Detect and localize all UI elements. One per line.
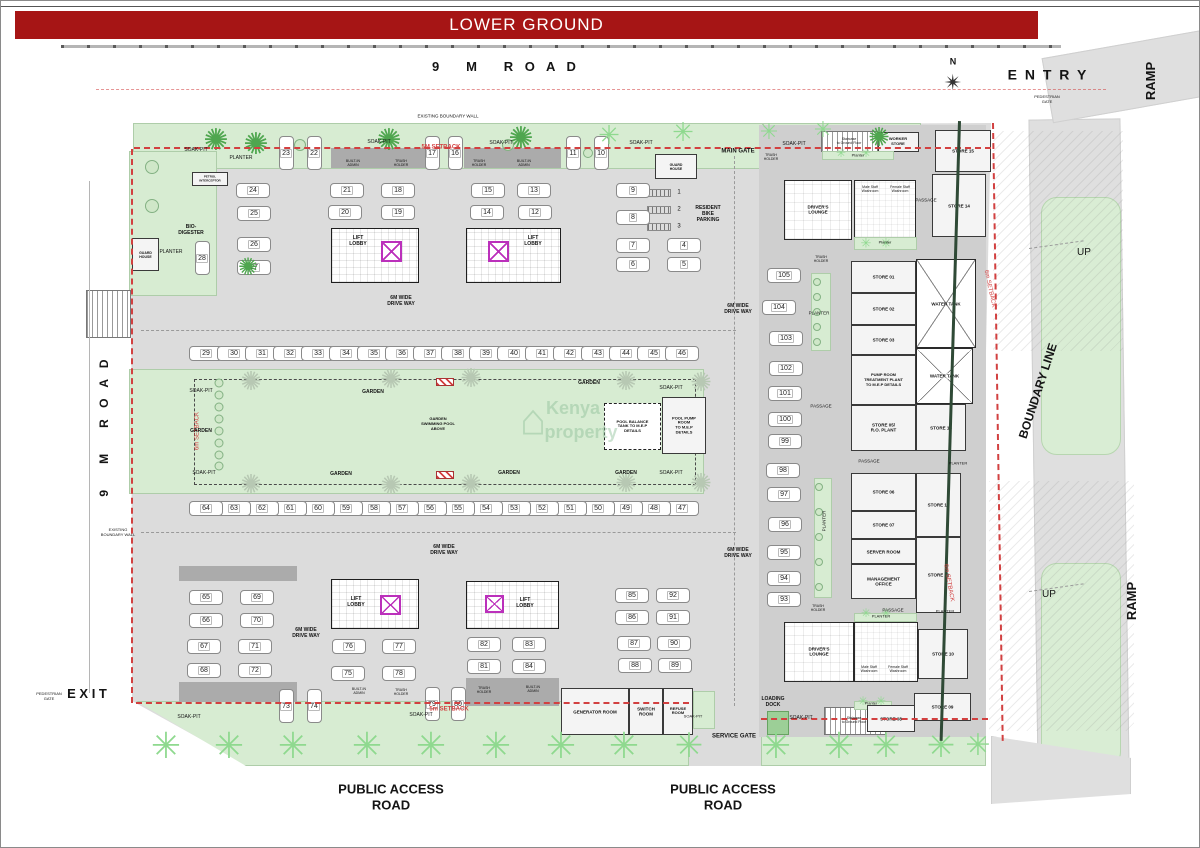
- label-9-m-r-o-a-d: 9 M R O A D: [97, 355, 111, 496]
- parking-number-46: 46: [676, 349, 688, 358]
- parking-stall-13: 13: [517, 183, 551, 198]
- room-label-guard-house-west: GUARD HOUSE: [139, 250, 152, 258]
- parking-number-63: 63: [228, 504, 240, 513]
- parking-stall-8: 8: [616, 210, 650, 225]
- label-planter: Planter: [865, 702, 878, 707]
- label-passage: PASSAGE: [858, 458, 879, 463]
- parking-stall-100: 100: [768, 412, 802, 427]
- parking-number-15: 15: [482, 186, 494, 195]
- parking-stall-11: 11: [566, 136, 581, 170]
- parking-number-7: 7: [629, 241, 637, 250]
- parking-stall-84: 84: [512, 659, 546, 674]
- room-lift-lobby-2: [466, 228, 561, 283]
- parking-stall-74: 74: [307, 689, 322, 723]
- label-trash-holder: TRASH HOLDER: [477, 686, 492, 694]
- label-loading-dock: LOADING DOCK: [761, 696, 784, 708]
- parking-number-38: 38: [452, 349, 464, 358]
- parking-number-29: 29: [200, 349, 212, 358]
- label-garden: GARDEN: [330, 471, 352, 477]
- label-ramp: RAMP: [1143, 62, 1159, 100]
- label-resident-bike-parking: RESIDENT BIKE PARKING: [695, 205, 720, 223]
- parking-number-11: 11: [567, 149, 578, 158]
- parking-number-12: 12: [529, 208, 541, 217]
- parking-number-105: 105: [776, 271, 792, 280]
- label-worker-store: WORKER STORE: [889, 137, 907, 147]
- label-main-gate: MAIN GATE: [721, 148, 754, 155]
- room-label-lift-lobby-3: LIFT LOBBY: [347, 596, 365, 608]
- room-lift-lobby-3: [331, 579, 419, 629]
- room-label-water-tank-2: WATER TANK: [930, 373, 959, 378]
- label-garden: GARDEN: [362, 389, 384, 395]
- parking-number-81: 81: [478, 662, 490, 671]
- label-planter: Planter: [852, 154, 865, 159]
- parking-number-47: 47: [676, 504, 688, 513]
- label-planter: PLANTER: [936, 610, 954, 615]
- parking-number-64: 64: [200, 504, 212, 513]
- parking-number-42: 42: [564, 349, 576, 358]
- parking-stall-83: 83: [512, 637, 546, 652]
- parking-stall-26: 26: [237, 237, 271, 252]
- line-lane-9: [141, 532, 736, 533]
- parking-stall-28: 28: [195, 241, 210, 275]
- line-wall-0: [61, 45, 1061, 48]
- parking-number-102: 102: [778, 364, 794, 373]
- label-built-in-admin: BUILT-IN ADMIN: [526, 685, 540, 693]
- parking-number-77: 77: [393, 642, 405, 651]
- label-bio-digester: BIO- DIGESTER: [178, 224, 204, 236]
- room-bike-rack-1: [647, 189, 671, 197]
- parking-number-48: 48: [648, 504, 660, 513]
- label-9-m-r-o-a-d: 9 M R O A D: [432, 59, 580, 75]
- parking-number-93: 93: [778, 595, 790, 604]
- line-redh-2: [134, 147, 991, 149]
- label-public-access-road: PUBLIC ACCESS ROAD: [338, 781, 444, 812]
- parking-number-43: 43: [592, 349, 604, 358]
- parking-number-58: 58: [368, 504, 380, 513]
- parking-number-14: 14: [481, 208, 493, 217]
- parking-stall-105: 105: [767, 268, 801, 283]
- label-pedestrian-gate: PEDESTRIAN GATE: [1034, 95, 1060, 105]
- parking-stall-80: 80: [451, 687, 466, 721]
- parking-stall-20: 20: [328, 205, 362, 220]
- parking-stall-82: 82: [467, 637, 501, 652]
- parking-number-65: 65: [200, 593, 212, 602]
- parking-stall-77: 77: [382, 639, 416, 654]
- room-lift-lobby-1: [331, 228, 419, 283]
- label-built-in-admin: BUILT-IN ADMIN: [352, 687, 366, 695]
- parking-number-90: 90: [668, 639, 680, 648]
- parking-number-92: 92: [667, 591, 679, 600]
- parking-stall-71: 71: [238, 639, 272, 654]
- label-soak-pit: SOAK-PIT: [782, 141, 805, 147]
- parking-number-78: 78: [393, 669, 405, 678]
- label-n: N: [950, 57, 957, 68]
- parking-number-33: 33: [312, 349, 324, 358]
- label-existing-boundary-wall: EXISTING BOUNDARY WALL: [101, 528, 135, 538]
- parking-number-91: 91: [667, 613, 679, 622]
- parking-number-86: 86: [626, 613, 638, 622]
- parking-stall-92: 92: [656, 588, 690, 603]
- room-bike-rack-2: [647, 206, 671, 214]
- label-female-staff-washroom: Female Staff Washroom: [888, 665, 908, 673]
- label-planter: PLANTER: [229, 155, 252, 161]
- parking-stall-96: 96: [768, 517, 802, 532]
- label-trash-holder: TRASH HOLDER: [811, 604, 826, 612]
- zone-hatch-bottom-right: [989, 481, 1134, 731]
- parking-stall-6: 6: [616, 257, 650, 272]
- parking-number-36: 36: [396, 349, 408, 358]
- label-soak-pit: SOAK-PIT: [184, 147, 207, 153]
- parking-stall-76: 76: [332, 639, 366, 654]
- room-label-store-03: STORE 03: [873, 337, 895, 342]
- parking-number-75: 75: [342, 669, 354, 678]
- room-label-water-tank-1: WATER TANK: [931, 301, 960, 306]
- parking-stall-17: 17: [425, 136, 440, 170]
- label-soak-pit: SOAK-PIT: [177, 714, 200, 720]
- parking-stall-67: 67: [187, 639, 221, 654]
- bike-number-1: 1: [677, 189, 680, 196]
- label-6m-wide-drive-way: 6M WIDE DRIVE WAY: [724, 303, 752, 315]
- room-label-drivers-lounge-north: DRIVER'S LOUNGE: [807, 205, 828, 216]
- parking-number-83: 83: [523, 640, 535, 649]
- parking-number-98: 98: [777, 466, 789, 475]
- parking-stall-99: 99: [768, 434, 802, 449]
- parking-number-84: 84: [523, 662, 535, 671]
- parking-stall-72: 72: [238, 663, 272, 678]
- label-6m-wide-drive-way: 6M WIDE DRIVE WAY: [387, 295, 415, 307]
- page-top-rule: [1, 6, 1199, 7]
- label-trash-holder: TRASH HOLDER: [394, 688, 409, 696]
- parking-stall-89: 89: [658, 658, 692, 673]
- parking-stall-85: 85: [615, 588, 649, 603]
- parking-stall-90: 90: [657, 636, 691, 651]
- parking-stall-93: 93: [767, 592, 801, 607]
- line-lanev-10: [734, 156, 735, 706]
- label-female-staff-washroom: Female Staff Washroom: [890, 185, 910, 193]
- room-soak-pit-green: [693, 691, 715, 729]
- parking-number-20: 20: [339, 208, 351, 217]
- line-lane-8: [141, 330, 736, 331]
- parking-number-56: 56: [424, 504, 436, 513]
- parking-number-69: 69: [251, 593, 263, 602]
- parking-number-21: 21: [341, 186, 353, 195]
- parking-number-24: 24: [247, 186, 259, 195]
- parking-stall-9: 9: [616, 183, 650, 198]
- room-island-bottom-1: [179, 566, 297, 581]
- room-planter-col-2: [814, 478, 832, 598]
- parking-number-39: 39: [480, 349, 492, 358]
- label-up: UP: [1077, 247, 1091, 259]
- parking-number-40: 40: [508, 349, 520, 358]
- parking-number-34: 34: [340, 349, 352, 358]
- parking-number-104: 104: [771, 303, 787, 312]
- parking-stall-4: 4: [667, 238, 701, 253]
- room-label-store-14: STORE 14: [948, 203, 970, 208]
- parking-number-103: 103: [778, 334, 794, 343]
- room-label-management-office: MANAGEMENT OFFICE: [867, 576, 900, 587]
- label-trash-holder: TRASH HOLDER: [764, 153, 779, 161]
- label-passage: PASSAGE: [915, 197, 936, 202]
- parking-number-18: 18: [392, 186, 404, 195]
- parking-stall-25: 25: [237, 206, 271, 221]
- parking-number-62: 62: [256, 504, 268, 513]
- line-redv-3: [131, 149, 133, 703]
- parking-number-31: 31: [256, 349, 268, 358]
- room-label-store-15: STORE 15: [952, 148, 974, 153]
- label-label: ⌂: [520, 395, 547, 448]
- label-planter: PLANTER: [949, 462, 967, 467]
- compass-icon: ✴: [944, 72, 962, 94]
- parking-number-99: 99: [779, 437, 791, 446]
- bike-number-2: 2: [677, 206, 680, 213]
- parking-number-70: 70: [251, 616, 263, 625]
- label-property: property: [544, 422, 617, 444]
- parking-number-76: 76: [343, 642, 355, 651]
- parking-number-35: 35: [368, 349, 380, 358]
- label-5m-setback: 5M SETBACK: [421, 144, 460, 151]
- parking-number-8: 8: [629, 213, 637, 222]
- room-loading-dock-pad: [767, 711, 789, 735]
- parking-stall-46: 46: [665, 346, 699, 361]
- room-lift-car-1: [381, 241, 402, 262]
- parking-stall-101: 101: [768, 386, 802, 401]
- parking-stall-78: 78: [382, 666, 416, 681]
- room-label-petrol-interceptor: PETROL INTERCEPTOR: [199, 175, 220, 182]
- room-label-store-06: STORE 06: [873, 489, 895, 494]
- label-passage: PASSAGE: [882, 607, 903, 612]
- parking-number-87: 87: [628, 639, 640, 648]
- label-planter: PLANTER: [821, 511, 826, 532]
- parking-stall-75: 75: [331, 666, 365, 681]
- parking-number-82: 82: [478, 640, 490, 649]
- parking-number-89: 89: [669, 661, 681, 670]
- label-6m-wide-drive-way: 6M WIDE DRIVE WAY: [724, 547, 752, 559]
- label-garden: GARDEN: [615, 470, 637, 476]
- parking-number-13: 13: [528, 186, 540, 195]
- label-6m-wide-drive-way: 6M WIDE DRIVE WAY: [292, 627, 320, 639]
- room-label-store-01: STORE 01: [873, 274, 895, 279]
- room-label-guard-house-gate: GUARD HOUSE: [670, 162, 683, 170]
- plan-title-bar: LOWER GROUND: [15, 11, 1038, 39]
- label-staircase-to-ground-floor: Staircase to Ground Floor: [842, 716, 867, 724]
- parking-stall-86: 86: [615, 610, 649, 625]
- room-label-server-room: SERVER ROOM: [867, 549, 901, 554]
- parking-number-32: 32: [284, 349, 296, 358]
- parking-number-4: 4: [680, 241, 688, 250]
- parking-stall-19: 19: [381, 205, 415, 220]
- parking-stall-81: 81: [467, 659, 501, 674]
- parking-stall-73: 73: [279, 689, 294, 723]
- parking-stall-91: 91: [656, 610, 690, 625]
- room-label-store-02: STORE 02: [873, 306, 895, 311]
- parking-stall-22: 22: [307, 136, 322, 170]
- parking-stall-12: 12: [518, 205, 552, 220]
- parking-number-85: 85: [626, 591, 638, 600]
- tree-palm: ✳: [151, 728, 181, 764]
- parking-stall-7: 7: [616, 238, 650, 253]
- parking-number-49: 49: [620, 504, 632, 513]
- label-soak-pit: SOAK-PIT: [789, 715, 812, 721]
- label-garden: GARDEN: [190, 428, 212, 434]
- parking-number-27: 27: [248, 263, 260, 272]
- floor-plan: LOWER GROUND LIFT LOBBYLIFT LOBBYLIFT LO…: [0, 0, 1200, 848]
- label-soak-pit: SOAK-PIT: [659, 385, 682, 391]
- parking-number-53: 53: [508, 504, 520, 513]
- label-planter: Planter: [879, 241, 892, 246]
- label-soak-pit: SOAK-PIT: [189, 388, 212, 394]
- parking-stall-66: 66: [189, 613, 223, 628]
- parking-stall-65: 65: [189, 590, 223, 605]
- parking-number-71: 71: [249, 642, 261, 651]
- parking-number-10: 10: [595, 149, 607, 158]
- parking-stall-10: 10: [594, 136, 609, 170]
- parking-number-25: 25: [248, 209, 260, 218]
- label-pedestrian-gate: PEDESTRIAN GATE: [36, 692, 62, 702]
- parking-number-94: 94: [778, 574, 790, 583]
- parking-stall-103: 103: [769, 331, 803, 346]
- parking-stall-97: 97: [767, 487, 801, 502]
- line-redh-4: [136, 702, 689, 704]
- label-e-x-i-t: E X I T: [67, 686, 107, 702]
- label-staircase-to-ground-floor: Staircase to Ground Floor: [837, 137, 862, 145]
- parking-number-23: 23: [280, 149, 292, 158]
- room-lift-car-2: [488, 241, 509, 262]
- label-male-staff-washroom: Male Staff Washroom: [861, 665, 878, 673]
- room-section-marker-north: [436, 378, 454, 386]
- label-soak-pit: SOAK-PIT: [409, 712, 432, 718]
- room-lift-car-3: [380, 595, 401, 615]
- label-existing-boundary-wall: EXISTING BOUNDARY WALL: [418, 113, 479, 118]
- parking-number-55: 55: [452, 504, 464, 513]
- label-kenya: Kenya: [546, 398, 600, 420]
- parking-stall-64: 64: [189, 501, 223, 516]
- parking-stall-16: 16: [448, 136, 463, 170]
- parking-number-28: 28: [196, 254, 208, 263]
- label-public-access-road: PUBLIC ACCESS ROAD: [670, 781, 776, 812]
- room-label-store-05-ro-plant: STORE 05/ R.O. PLANT: [871, 423, 897, 434]
- bike-number-3: 3: [677, 223, 680, 230]
- parking-stall-23: 23: [279, 136, 294, 170]
- parking-number-9: 9: [629, 186, 637, 195]
- parking-number-97: 97: [778, 490, 790, 499]
- parking-stall-15: 15: [471, 183, 505, 198]
- parking-stall-94: 94: [767, 571, 801, 586]
- label-ramp: RAMP: [1124, 582, 1140, 620]
- parking-number-100: 100: [777, 415, 793, 424]
- parking-number-22: 22: [308, 149, 320, 158]
- label-passage: PASSAGE: [810, 403, 831, 408]
- parking-stall-88: 88: [618, 658, 652, 673]
- label-6m-wide-drive-way: 6M WIDE DRIVE WAY: [430, 544, 458, 556]
- parking-stall-95: 95: [767, 545, 801, 560]
- room-label-lift-lobby-4: LIFT LOBBY: [516, 597, 534, 609]
- parking-number-88: 88: [629, 661, 641, 670]
- room-label-lift-lobby-1: LIFT LOBBY: [349, 235, 367, 247]
- parking-number-66: 66: [200, 616, 212, 625]
- label-soak-pit: SOAK-PIT: [489, 140, 512, 146]
- label-garden: GARDEN: [498, 470, 520, 476]
- label-5m-setback: 5m SETBACK: [429, 706, 468, 713]
- room-label-switch-room: SWITCH ROOM: [637, 706, 655, 717]
- room-stair-exit-left: [86, 290, 131, 338]
- room-section-marker-south: [436, 471, 454, 479]
- parking-stall-27: 27: [237, 260, 271, 275]
- label-built-in-admin: BUILT-IN ADMIN: [517, 159, 531, 167]
- parking-number-60: 60: [312, 504, 324, 513]
- room-label-pool-balance-tank: POOL BALANCE TANK TO M.E.P DETAILS: [617, 419, 649, 433]
- parking-number-68: 68: [198, 666, 210, 675]
- room-label-pool-pump-room: POOL PUMP ROOM TO M.E.P DETAILS: [672, 416, 696, 435]
- label-male-staff-washroom: Male Staff Washroom: [862, 185, 879, 193]
- label-soak-pit: SOAK-PIT: [684, 715, 703, 720]
- parking-number-59: 59: [340, 504, 352, 513]
- room-label-generator-room: GENERATOR ROOM: [573, 709, 617, 714]
- parking-number-30: 30: [228, 349, 240, 358]
- parking-number-101: 101: [777, 389, 793, 398]
- room-label-store-07: STORE 07: [873, 522, 895, 527]
- label-garden-swimming-pool-above: GARDEN SWIMMING POOL ABOVE: [421, 417, 455, 431]
- parking-stall-18: 18: [381, 183, 415, 198]
- parking-stall-70: 70: [240, 613, 274, 628]
- parking-stall-102: 102: [769, 361, 803, 376]
- parking-stall-68: 68: [187, 663, 221, 678]
- label-up: UP: [1042, 589, 1056, 601]
- room-label-pump-room: PUMP ROOM TREATMENT PLANT TO M.E.P DETAI…: [864, 373, 903, 387]
- parking-number-52: 52: [536, 504, 548, 513]
- room-lift-car-4: [485, 595, 504, 613]
- parking-number-61: 61: [284, 504, 296, 513]
- parking-number-57: 57: [396, 504, 408, 513]
- parking-number-72: 72: [249, 666, 261, 675]
- parking-number-6: 6: [629, 260, 637, 269]
- parking-stall-21: 21: [330, 183, 364, 198]
- parking-number-41: 41: [536, 349, 548, 358]
- parking-stall-24: 24: [236, 183, 270, 198]
- parking-number-67: 67: [198, 642, 210, 651]
- parking-number-45: 45: [648, 349, 660, 358]
- parking-number-51: 51: [564, 504, 576, 513]
- parking-stall-104: 104: [762, 300, 796, 315]
- label-trash-holder: TRASH HOLDER: [814, 255, 829, 263]
- room-lift-lobby-4: [466, 581, 559, 629]
- room-label-lift-lobby-2: LIFT LOBBY: [524, 235, 542, 247]
- parking-number-50: 50: [592, 504, 604, 513]
- label-built-in-admin: BUILT-IN ADMIN: [346, 159, 360, 167]
- label-soak-pit: SOAK-PIT: [192, 470, 215, 476]
- room-bike-rack-3: [647, 223, 671, 231]
- label-soak-pit: SOAK-PIT: [629, 140, 652, 146]
- label-planter: PLANTER: [872, 615, 890, 620]
- parking-number-37: 37: [424, 349, 436, 358]
- label-planter: PLANTER: [809, 310, 830, 315]
- label-soak-pit: SOAK-PIT: [659, 470, 682, 476]
- label-garden: GARDEN: [578, 380, 600, 386]
- zone-hatch-top-right: [993, 131, 1123, 351]
- label-trash-holder: TRASH HOLDER: [472, 159, 487, 167]
- line-grayv-11: [89, 181, 90, 693]
- parking-number-5: 5: [680, 260, 688, 269]
- parking-number-26: 26: [248, 240, 260, 249]
- room-label-drivers-lounge-south: DRIVER'S LOUNGE: [808, 647, 829, 658]
- parking-stall-69: 69: [240, 590, 274, 605]
- label-e-n-t-r-y: E N T R Y: [1008, 67, 1089, 84]
- parking-number-54: 54: [480, 504, 492, 513]
- parking-number-44: 44: [620, 349, 632, 358]
- parking-stall-98: 98: [766, 463, 800, 478]
- parking-stall-87: 87: [617, 636, 651, 651]
- plan-title: LOWER GROUND: [449, 15, 604, 35]
- label-soak-pit: SOAK-PIT: [367, 139, 390, 145]
